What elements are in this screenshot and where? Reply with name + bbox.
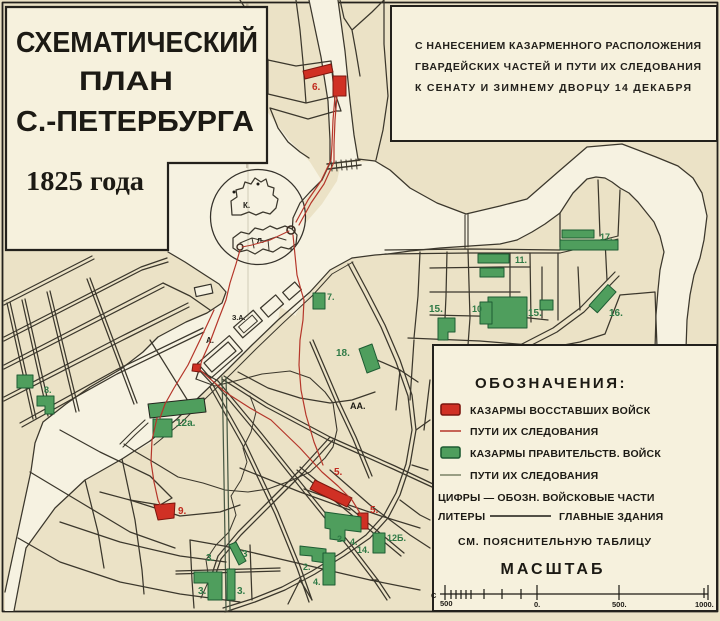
svg-text:2.: 2. [303,562,311,572]
svg-text:МАСШТАБ: МАСШТАБ [501,561,606,578]
svg-text:14.: 14. [357,545,370,555]
svg-text:10: 10 [472,304,482,314]
svg-text:3.: 3. [206,553,215,564]
svg-text:С НАНЕСЕНИЕМ КАЗАРМЕННОГО РАСП: С НАНЕСЕНИЕМ КАЗАРМЕННОГО РАСПОЛОЖЕНИЯ [415,40,701,52]
svg-text:КАЗАРМЫ ВОССТАВШИХ ВОЙСК: КАЗАРМЫ ВОССТАВШИХ ВОЙСК [470,404,651,417]
svg-text:500.: 500. [612,600,627,609]
svg-text:ГВАРДЕЙСКИХ ЧАСТЕЙ И ПУТИ ИХ С: ГВАРДЕЙСКИХ ЧАСТЕЙ И ПУТИ ИХ СЛЕДОВАНИЯ [415,60,701,73]
svg-text:7.: 7. [327,292,335,302]
svg-text:З.А.: З.А. [232,315,245,322]
svg-text:3.: 3. [237,586,246,597]
svg-text:2.: 2. [337,534,345,544]
svg-text:1000.: 1000. [695,600,714,609]
svg-text:3.: 3. [198,586,207,597]
svg-text:12Б.: 12Б. [387,533,406,543]
svg-text:СХЕМАТИЧЕСКИЙ: СХЕМАТИЧЕСКИЙ [16,25,258,59]
svg-text:1825 года: 1825 года [26,166,145,196]
svg-text:8.: 8. [44,385,52,395]
svg-text:ГЛАВНЫЕ ЗДАНИЯ: ГЛАВНЫЕ ЗДАНИЯ [559,511,664,523]
svg-text:ЦИФРЫ — ОБОЗН. ВОЙСКОВЫЕ ЧАСТИ: ЦИФРЫ — ОБОЗН. ВОЙСКОВЫЕ ЧАСТИ [438,491,655,504]
svg-text:16.: 16. [609,308,623,319]
svg-text:6.: 6. [312,82,321,93]
svg-text:АА.: АА. [350,401,366,411]
svg-text:5.: 5. [334,467,343,478]
svg-text:СМ. ПОЯСНИТЕЛЬНУЮ ТАБЛИЦУ: СМ. ПОЯСНИТЕЛЬНУЮ ТАБЛИЦУ [458,536,652,548]
svg-text:0.: 0. [534,600,540,609]
svg-text:3: 3 [242,549,248,560]
svg-text:К.: К. [243,201,250,210]
svg-text:К СЕНАТУ И ЗИМНЕМУ ДВОРЦУ 14 Д: К СЕНАТУ И ЗИМНЕМУ ДВОРЦУ 14 ДЕКАБРЯ [415,82,691,94]
svg-text:ПУТИ ИХ СЛЕДОВАНИЯ: ПУТИ ИХ СЛЕДОВАНИЯ [470,470,598,482]
svg-text:ЛИТЕРЫ: ЛИТЕРЫ [438,511,485,523]
svg-text:500: 500 [440,599,453,608]
svg-text:С.-ПЕТЕРБУРГА: С.-ПЕТЕРБУРГА [16,106,254,138]
svg-text:ОБОЗНАЧЕНИЯ:: ОБОЗНАЧЕНИЯ: [475,375,627,392]
svg-text:С: С [431,591,437,600]
svg-text:11.: 11. [515,255,527,265]
svg-text:9.: 9. [178,506,187,517]
svg-text:5.: 5. [370,505,379,516]
svg-text:15.: 15. [429,304,443,315]
svg-text:12а.: 12а. [176,418,196,429]
svg-text:КАЗАРМЫ ПРАВИТЕЛЬСТВ. ВОЙСК: КАЗАРМЫ ПРАВИТЕЛЬСТВ. ВОЙСК [470,447,661,460]
svg-text:17.: 17. [600,232,613,242]
svg-text:ПЛАН: ПЛАН [79,66,173,96]
svg-text:18.: 18. [336,348,350,359]
svg-text:ПУТИ ИХ СЛЕДОВАНИЯ: ПУТИ ИХ СЛЕДОВАНИЯ [470,426,598,438]
svg-text:4.: 4. [313,577,321,587]
